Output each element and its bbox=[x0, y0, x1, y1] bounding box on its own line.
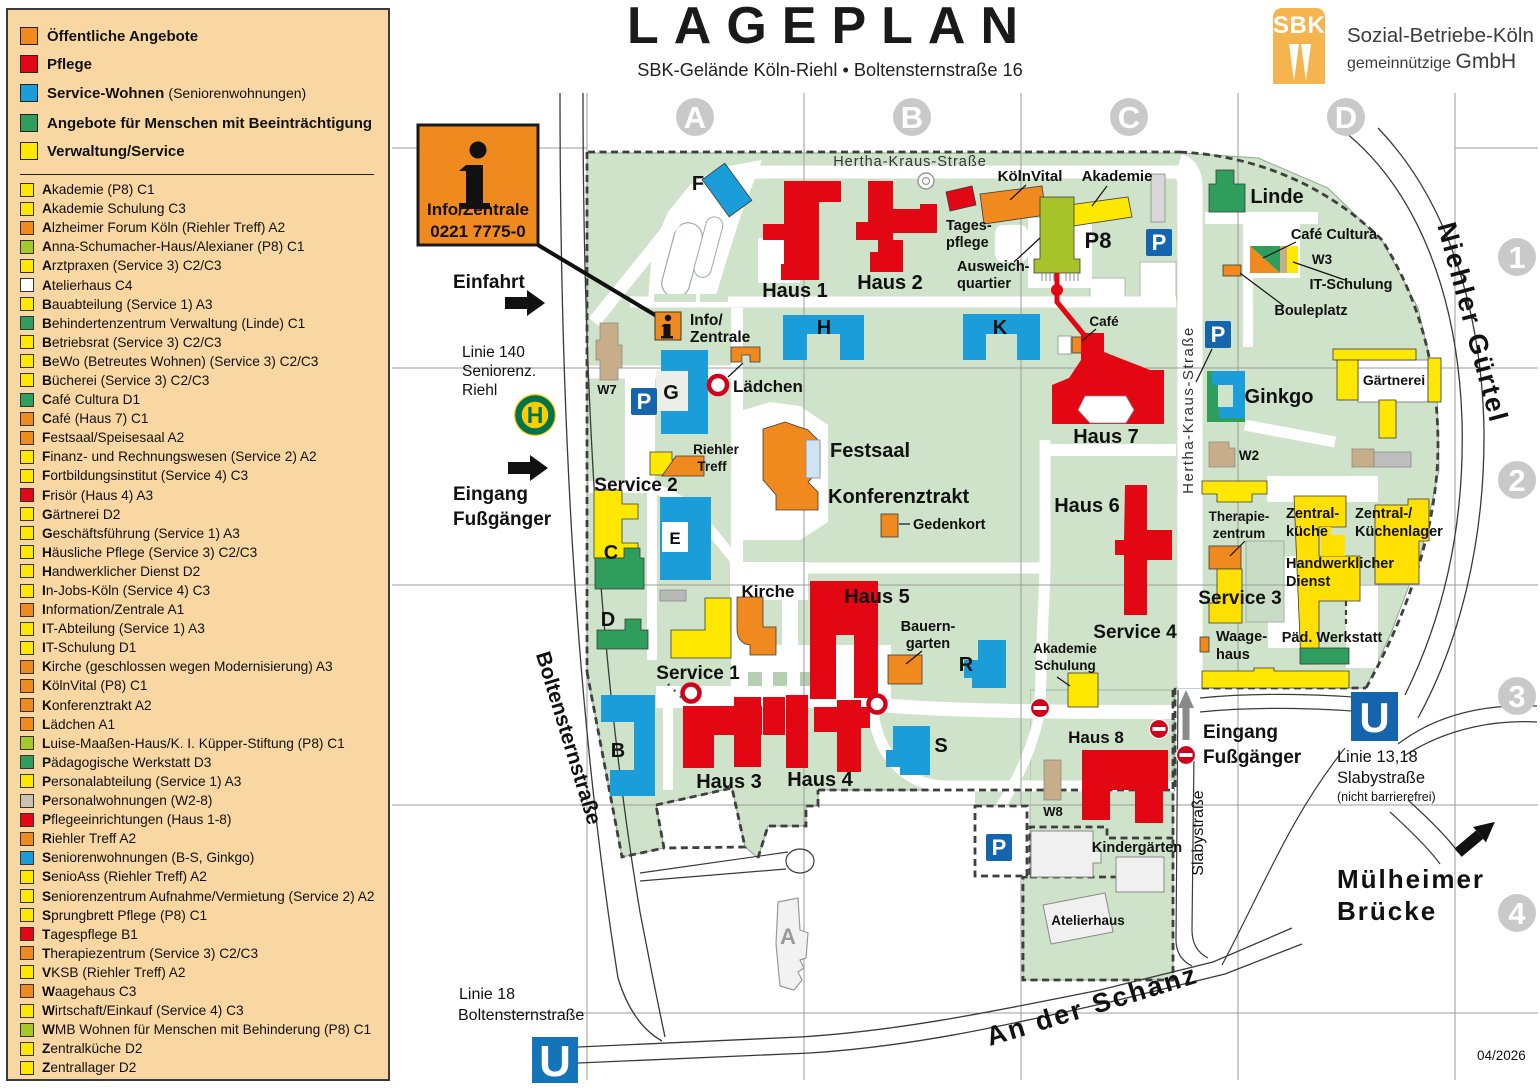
svg-text:Kirche: Kirche bbox=[742, 582, 795, 601]
svg-text:IT-Schulung: IT-Schulung bbox=[1310, 277, 1393, 293]
svg-text:haus: haus bbox=[1216, 647, 1250, 663]
svg-text:Seniorenz.: Seniorenz. bbox=[462, 363, 536, 380]
svg-text:Ausweich-: Ausweich- bbox=[957, 259, 1030, 275]
svg-text:Dienst: Dienst bbox=[1286, 574, 1330, 590]
svg-text:Service 2: Service 2 bbox=[594, 475, 677, 496]
svg-text:Eingang: Eingang bbox=[453, 484, 528, 505]
svg-text:Mülheimer: Mülheimer bbox=[1337, 864, 1485, 894]
svg-text:Info/: Info/ bbox=[690, 312, 723, 329]
svg-text:W2: W2 bbox=[1239, 448, 1259, 463]
svg-text:P: P bbox=[1211, 322, 1226, 347]
svg-text:quartier: quartier bbox=[957, 276, 1011, 292]
svg-text:R: R bbox=[959, 654, 974, 676]
svg-text:B: B bbox=[611, 740, 625, 762]
svg-text:A: A bbox=[684, 100, 706, 135]
svg-text:A: A bbox=[780, 924, 796, 949]
svg-text:W3: W3 bbox=[1312, 252, 1333, 267]
svg-text:Schulung: Schulung bbox=[1034, 658, 1096, 673]
svg-text:Lädchen: Lädchen bbox=[733, 377, 803, 396]
svg-text:F: F bbox=[692, 173, 704, 195]
svg-text:Zentral-: Zentral- bbox=[1286, 506, 1339, 522]
svg-text:K: K bbox=[993, 317, 1008, 339]
svg-text:Tages-: Tages- bbox=[946, 218, 992, 234]
svg-text:Gedenkort: Gedenkort bbox=[913, 517, 986, 533]
svg-text:(nicht barrierefrei): (nicht barrierefrei) bbox=[1337, 790, 1436, 804]
svg-text:W7: W7 bbox=[597, 382, 617, 397]
svg-text:C: C bbox=[1118, 100, 1140, 135]
svg-text:Akademie: Akademie bbox=[1033, 641, 1097, 656]
svg-text:P: P bbox=[637, 389, 652, 414]
svg-text:Eingang: Eingang bbox=[1203, 722, 1278, 743]
svg-text:P: P bbox=[992, 835, 1007, 860]
svg-text:Riehl: Riehl bbox=[462, 382, 497, 399]
svg-text:Haus 7: Haus 7 bbox=[1073, 426, 1139, 448]
svg-text:Service 1: Service 1 bbox=[656, 663, 740, 684]
svg-text:Haus 8: Haus 8 bbox=[1068, 728, 1124, 747]
svg-text:Brücke: Brücke bbox=[1337, 896, 1437, 926]
svg-text:Slabystraße: Slabystraße bbox=[1337, 769, 1425, 787]
svg-text:P8: P8 bbox=[1085, 228, 1112, 253]
svg-text:3: 3 bbox=[1508, 679, 1525, 714]
svg-text:Fußgänger: Fußgänger bbox=[453, 509, 552, 530]
svg-text:Boltensternstraße: Boltensternstraße bbox=[458, 1007, 584, 1024]
svg-text:zentrum: zentrum bbox=[1213, 526, 1266, 541]
svg-text:0221 7775-0: 0221 7775-0 bbox=[430, 222, 525, 241]
svg-text:Zentrale: Zentrale bbox=[690, 329, 751, 346]
svg-text:Atelierhaus: Atelierhaus bbox=[1051, 913, 1125, 928]
svg-text:Linie 18: Linie 18 bbox=[459, 986, 515, 1003]
svg-text:KölnVital: KölnVital bbox=[998, 168, 1063, 185]
svg-text:Päd. Werkstatt: Päd. Werkstatt bbox=[1282, 630, 1383, 646]
svg-text:pflege: pflege bbox=[946, 235, 989, 251]
svg-text:G: G bbox=[663, 382, 679, 404]
svg-text:4: 4 bbox=[1508, 896, 1526, 931]
svg-text:P: P bbox=[1152, 230, 1167, 255]
svg-text:Haus 3: Haus 3 bbox=[696, 771, 762, 793]
svg-text:H: H bbox=[527, 402, 544, 428]
svg-text:Treff: Treff bbox=[697, 459, 727, 474]
svg-text:H: H bbox=[817, 317, 831, 339]
svg-text:04/2026: 04/2026 bbox=[1477, 1048, 1526, 1063]
svg-text:S: S bbox=[934, 735, 947, 757]
svg-text:Bauern-: Bauern- bbox=[901, 619, 956, 635]
svg-text:Service 4: Service 4 bbox=[1093, 622, 1177, 643]
svg-text:Haus 2: Haus 2 bbox=[857, 272, 923, 294]
svg-text:Akademie: Akademie bbox=[1082, 168, 1153, 185]
svg-text:Riehler: Riehler bbox=[693, 442, 740, 457]
svg-text:Café Cultura: Café Cultura bbox=[1291, 227, 1378, 243]
svg-text:Café: Café bbox=[1089, 314, 1119, 329]
svg-text:Bouleplatz: Bouleplatz bbox=[1274, 303, 1347, 319]
svg-text:Einfahrt: Einfahrt bbox=[453, 272, 525, 293]
svg-text:Küchenlager: Küchenlager bbox=[1355, 524, 1443, 540]
svg-text:B: B bbox=[901, 100, 923, 135]
svg-text:C: C bbox=[604, 542, 618, 564]
svg-text:Haus 6: Haus 6 bbox=[1054, 495, 1120, 517]
svg-text:Ginkgo: Ginkgo bbox=[1245, 386, 1314, 408]
svg-text:U: U bbox=[1359, 694, 1389, 741]
svg-text:Fußgänger: Fußgänger bbox=[1203, 747, 1302, 768]
svg-text:küche: küche bbox=[1286, 524, 1328, 540]
svg-text:D: D bbox=[601, 609, 615, 631]
svg-text:W8: W8 bbox=[1043, 804, 1063, 819]
svg-text:Slabystraße: Slabystraße bbox=[1190, 790, 1207, 875]
svg-text:Linie 13,18: Linie 13,18 bbox=[1337, 748, 1418, 766]
svg-text:U: U bbox=[539, 1037, 571, 1086]
svg-text:Festsaal: Festsaal bbox=[830, 440, 910, 462]
svg-text:Konferenztrakt: Konferenztrakt bbox=[828, 486, 969, 508]
svg-text:E: E bbox=[669, 529, 680, 548]
svg-text:Haus 1: Haus 1 bbox=[762, 280, 828, 302]
svg-text:Haus 4: Haus 4 bbox=[787, 769, 853, 791]
svg-text:Hertha-Kraus-Straße: Hertha-Kraus-Straße bbox=[1180, 326, 1197, 494]
svg-text:Waage-: Waage- bbox=[1216, 629, 1267, 645]
svg-text:Linie 140: Linie 140 bbox=[462, 344, 525, 361]
svg-text:Kindergärten: Kindergärten bbox=[1092, 840, 1182, 856]
svg-text:Gärtnerei: Gärtnerei bbox=[1363, 372, 1425, 388]
svg-text:2: 2 bbox=[1508, 463, 1525, 498]
svg-text:Service 3: Service 3 bbox=[1198, 588, 1281, 609]
svg-text:1: 1 bbox=[1508, 240, 1525, 275]
svg-text:Linde: Linde bbox=[1250, 186, 1303, 208]
svg-text:D: D bbox=[1335, 100, 1357, 135]
svg-text:Haus 5: Haus 5 bbox=[844, 586, 910, 608]
svg-text:Zentral-/: Zentral-/ bbox=[1355, 506, 1412, 522]
svg-text:Therapie-: Therapie- bbox=[1209, 509, 1270, 524]
svg-text:Handwerklicher: Handwerklicher bbox=[1286, 556, 1394, 572]
svg-text:garten: garten bbox=[906, 636, 950, 652]
svg-text:Info/Zentrale: Info/Zentrale bbox=[427, 200, 529, 219]
svg-text:Hertha-Kraus-Straße: Hertha-Kraus-Straße bbox=[833, 154, 987, 170]
